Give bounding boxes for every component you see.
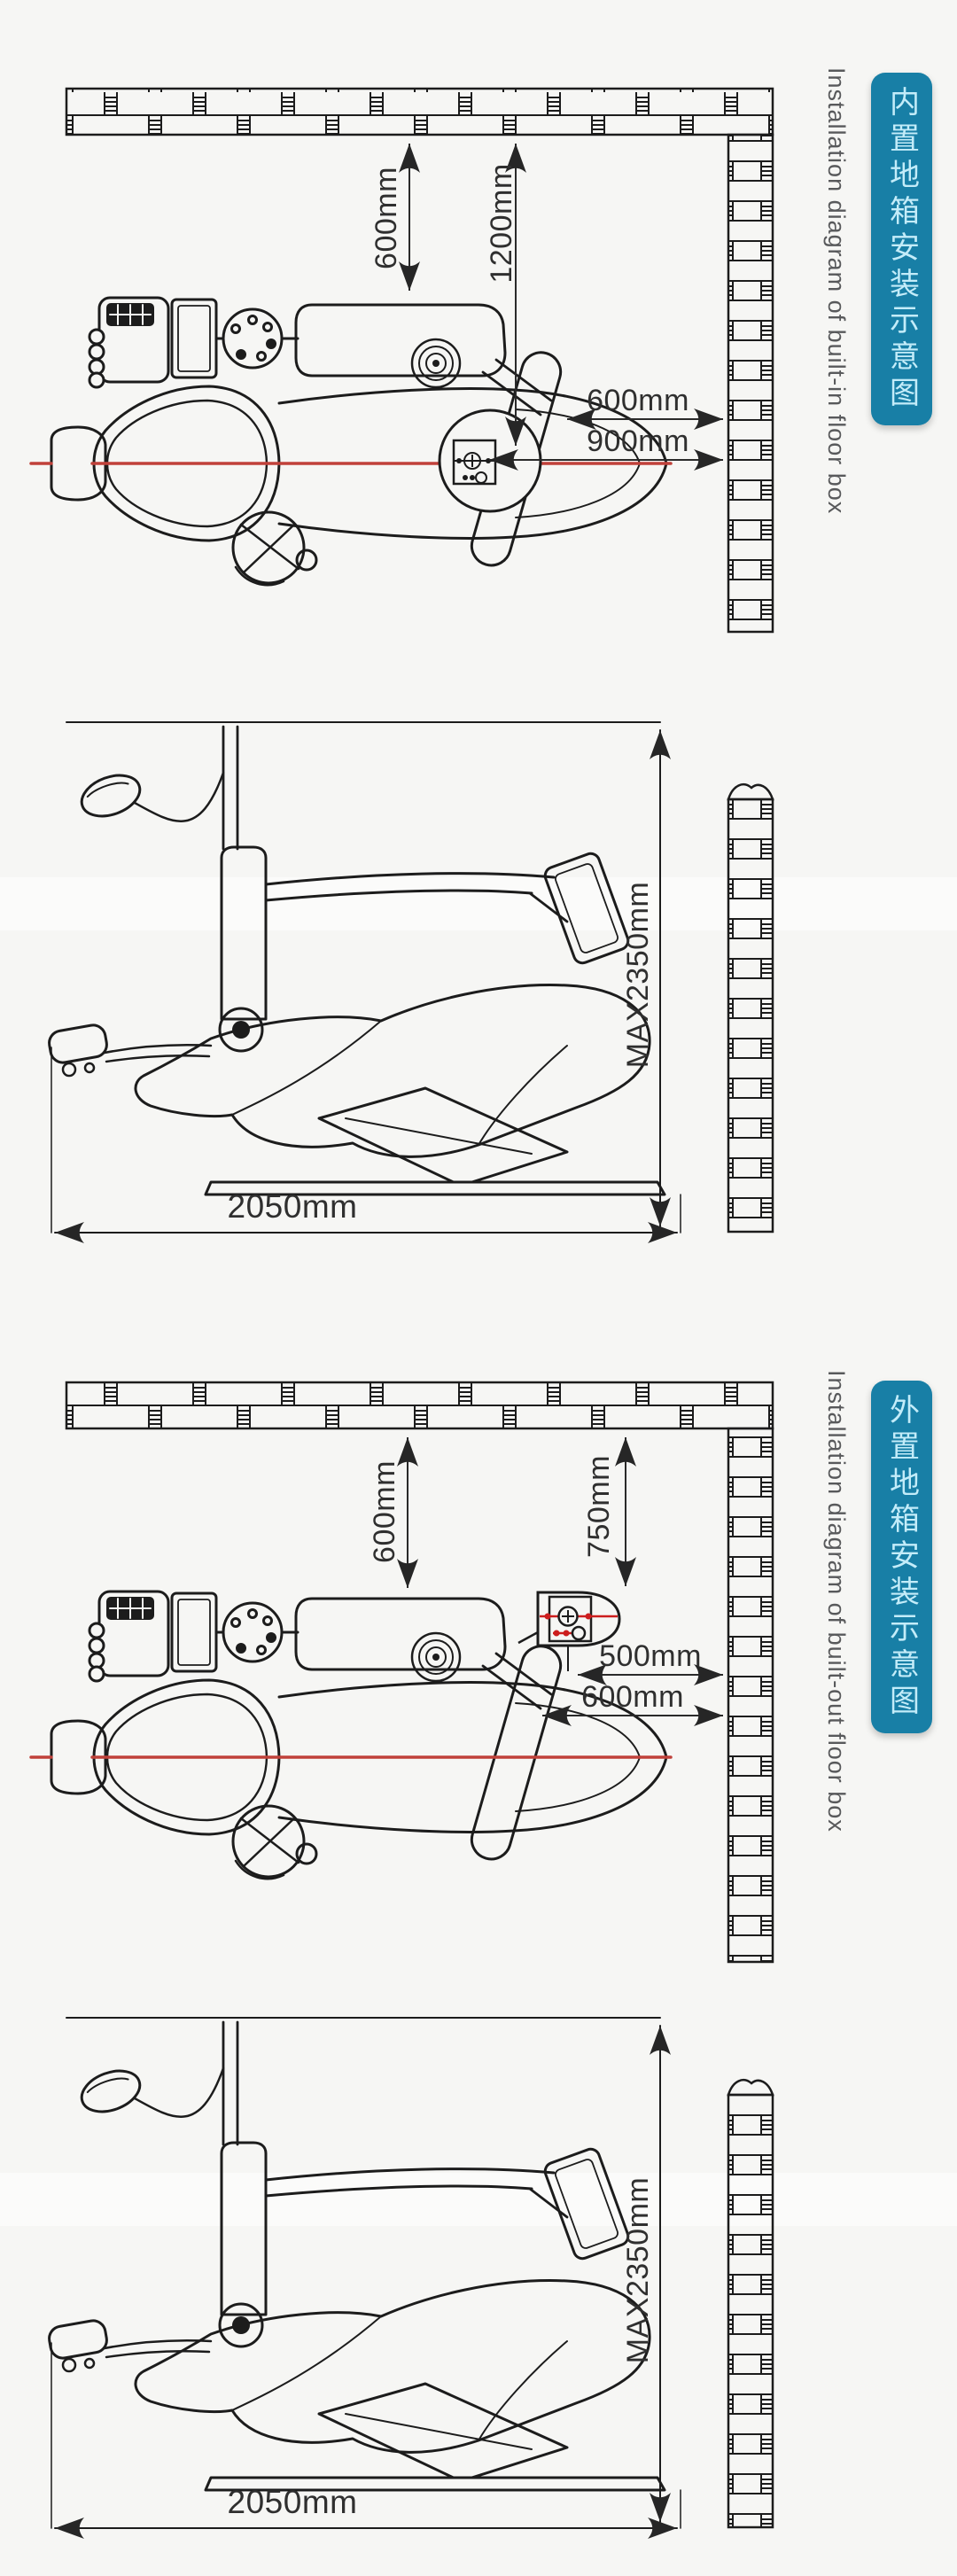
section-subtitle-built-in: Installation diagram of built-in floor b… (821, 67, 852, 581)
dim-chair-to-wall-2: 600mm (571, 1681, 695, 1713)
brick-wall-top (66, 89, 773, 135)
dim-floorbox-to-wall-1: 900mm (576, 425, 700, 457)
section-title-built-out: 外置地箱安装示意图 (871, 1381, 932, 1733)
dim-wall-to-chair-1: 600mm (370, 156, 402, 280)
dim-length-2: 2050mm (222, 2487, 363, 2518)
section-title-cn: 内置地箱安装示意图 (887, 86, 917, 413)
dim-wall-to-floorbox-2: 750mm (583, 1444, 615, 1568)
dim-max-height-2: MAX2350mm (622, 2173, 654, 2368)
brick-wall-right (728, 1428, 773, 1962)
section-subtitle-built-out: Installation diagram of built-out floor … (821, 1370, 852, 1916)
dim-chair-to-wall-1: 600mm (576, 385, 700, 416)
dim-floorbox-to-wall-2: 500mm (588, 1640, 712, 1672)
installation-diagram-page: 600mm 1200mm 600mm 900mm MAX2350mm 2050m… (0, 0, 957, 2576)
brick-wall-right (728, 135, 773, 632)
brick-wall-right (728, 799, 773, 1232)
section-built-out-side-view (47, 2018, 773, 2528)
dim-length-1: 2050mm (222, 1191, 363, 1223)
dimension-lines (408, 1437, 723, 1716)
dim-max-height-1: MAX2350mm (622, 877, 654, 1072)
section-title-cn: 外置地箱安装示意图 (887, 1394, 917, 1721)
dim-wall-to-chair-2: 600mm (369, 1450, 401, 1574)
section-title-built-in: 内置地箱安装示意图 (871, 73, 932, 425)
brick-wall-top (66, 1382, 773, 1428)
dim-wall-to-floorbox-1: 1200mm (486, 161, 517, 285)
brick-wall-right (728, 2095, 773, 2527)
diagram-line-art (0, 0, 957, 2576)
section-built-in-side-view (47, 722, 773, 1233)
